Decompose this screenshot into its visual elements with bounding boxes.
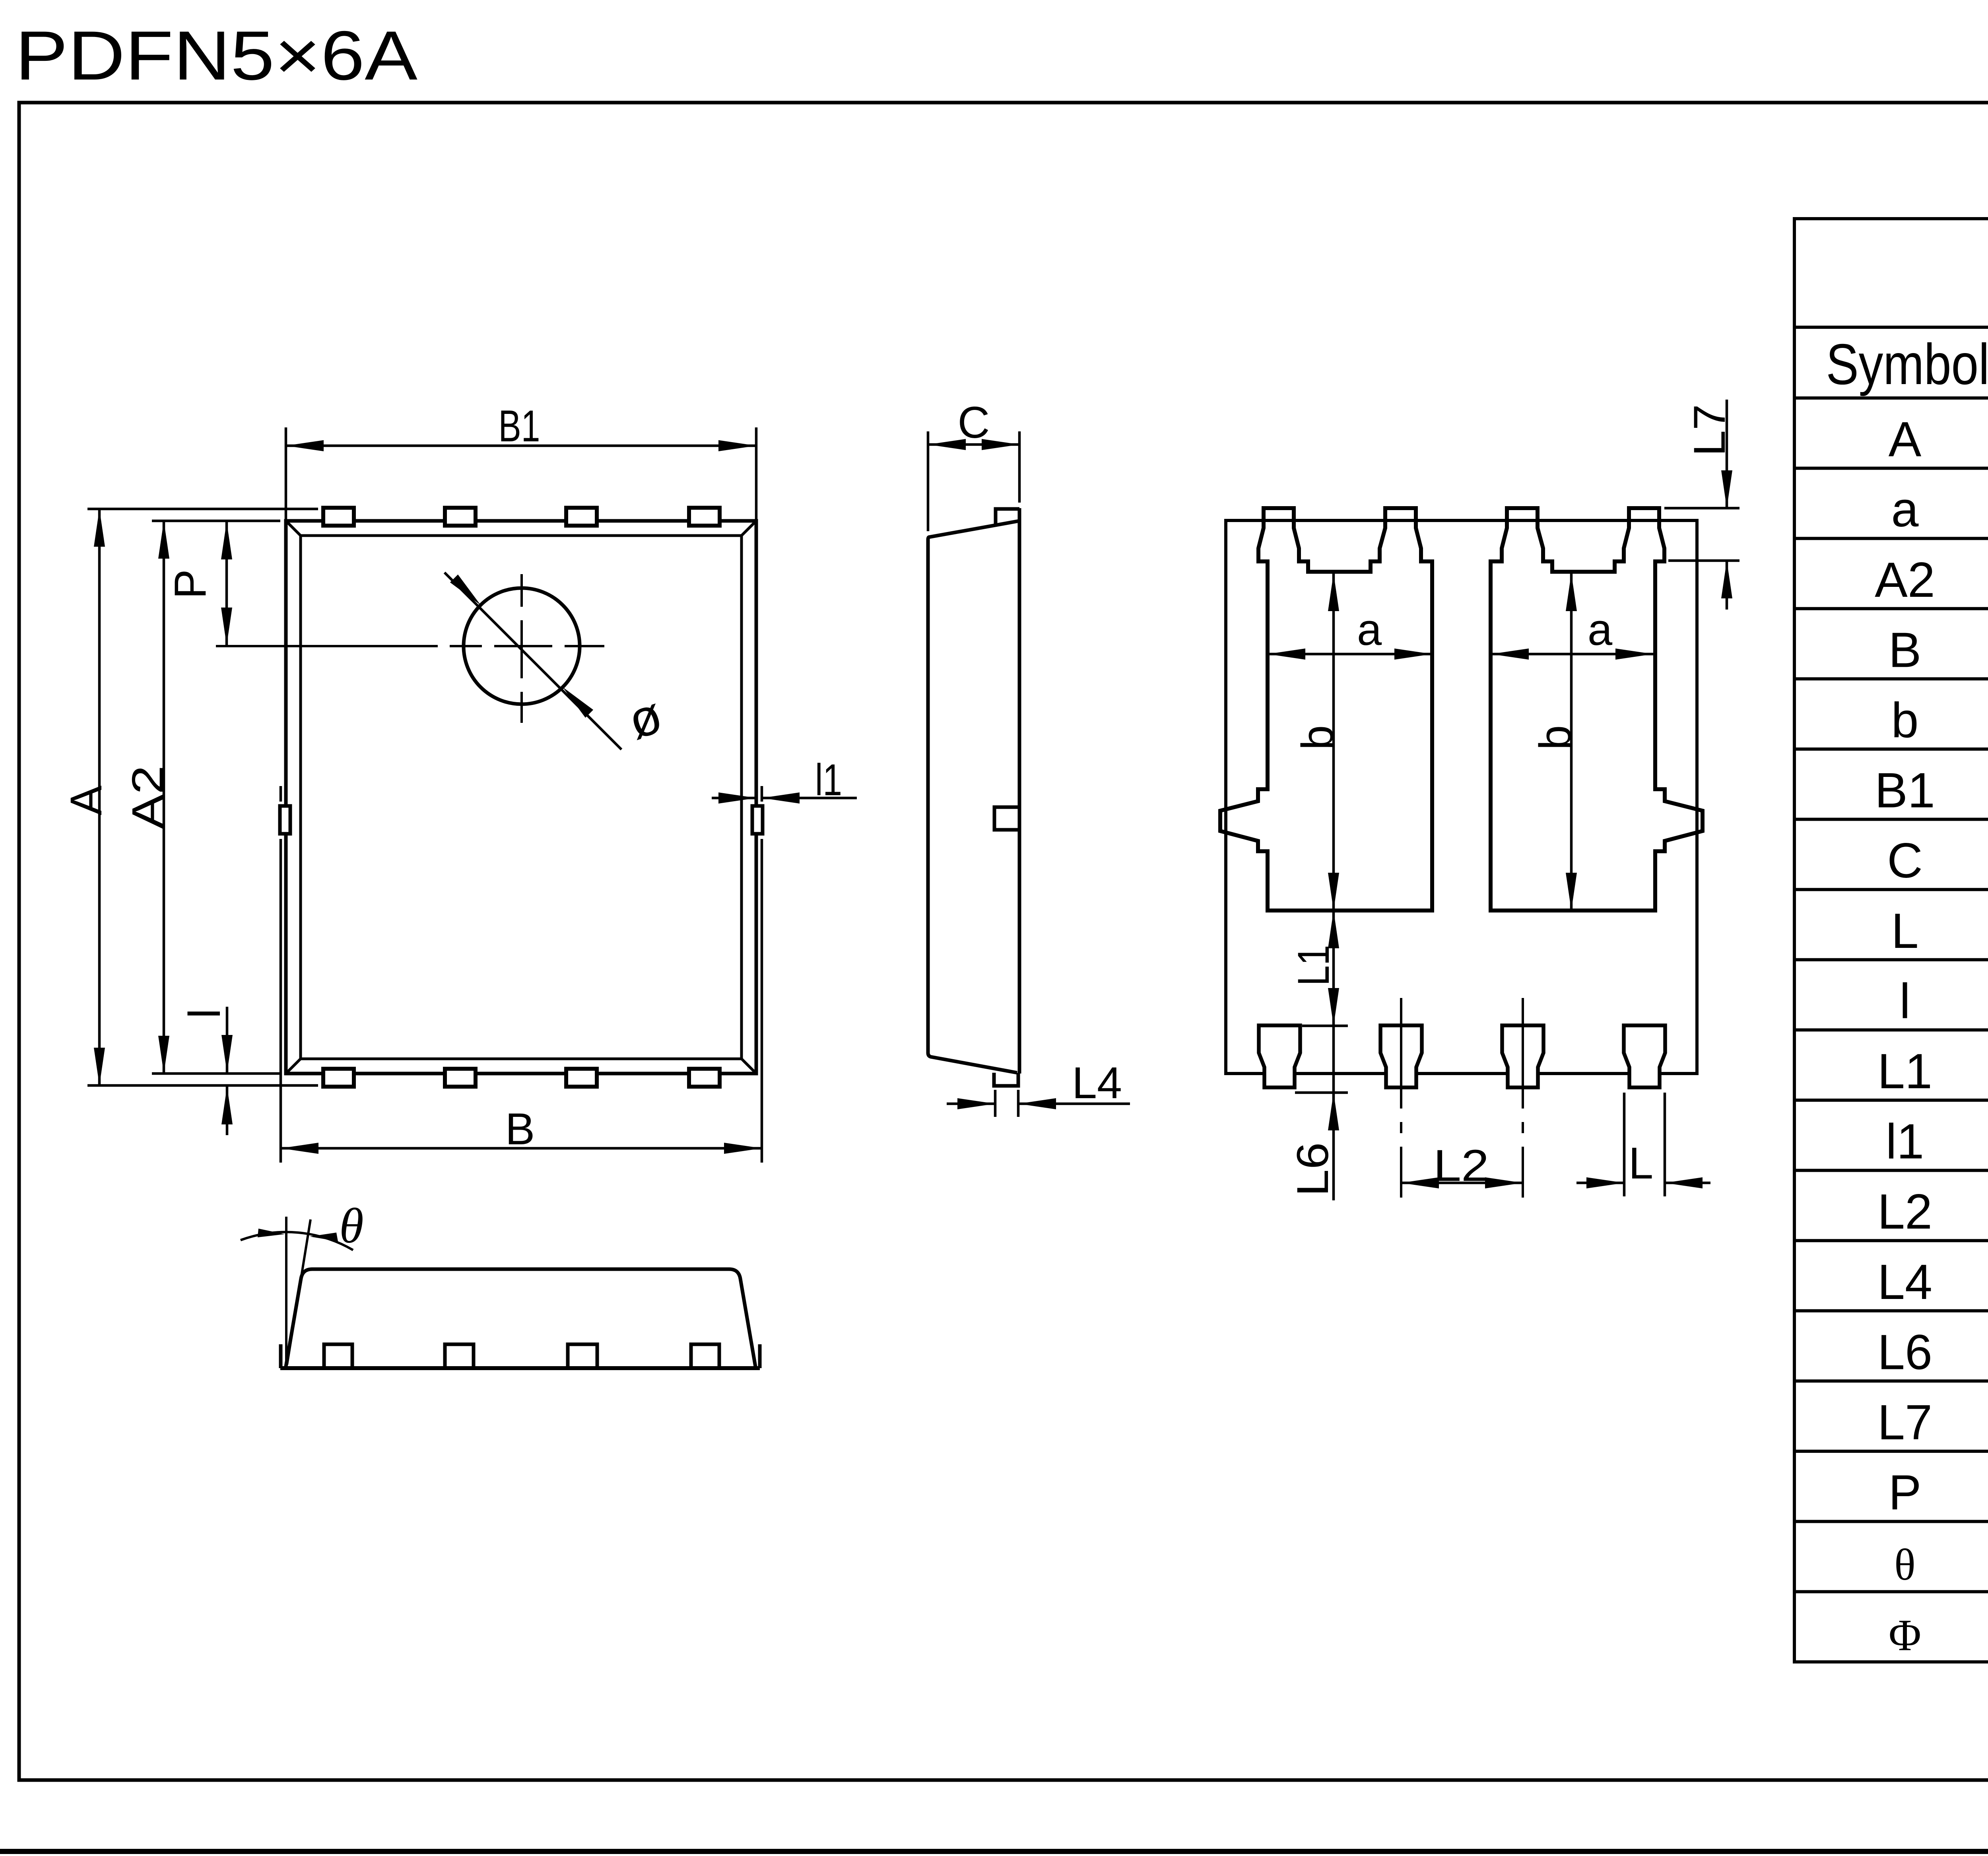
svg-text:b: b <box>1293 725 1342 750</box>
svg-text:l1: l1 <box>815 755 842 805</box>
svg-text:a: a <box>1357 605 1382 654</box>
svg-text:L4: L4 <box>1877 1255 1932 1310</box>
svg-text:L: L <box>1891 904 1919 959</box>
svg-text:L2: L2 <box>1877 1184 1932 1239</box>
svg-text:L6: L6 <box>1877 1325 1932 1380</box>
svg-text:PDFN5×6A: PDFN5×6A <box>15 17 417 95</box>
svg-text:P: P <box>1889 1466 1922 1520</box>
svg-text:A: A <box>61 785 111 815</box>
svg-text:A2: A2 <box>1875 553 1935 608</box>
svg-text:L1: L1 <box>1289 945 1338 986</box>
svg-text:b: b <box>1891 693 1919 748</box>
svg-text:L7: L7 <box>1685 404 1734 456</box>
svg-text:L6: L6 <box>1288 1142 1338 1196</box>
svg-text:l1: l1 <box>1886 1114 1924 1169</box>
svg-text:L4: L4 <box>1072 1058 1122 1108</box>
svg-text:B1: B1 <box>1875 763 1935 818</box>
svg-text:A2: A2 <box>123 765 173 829</box>
svg-text:b: b <box>1530 725 1580 750</box>
svg-text:C: C <box>958 398 990 447</box>
svg-text:L7: L7 <box>1877 1395 1932 1450</box>
svg-text:l: l <box>180 1009 229 1019</box>
svg-text:l: l <box>1899 974 1910 1029</box>
svg-text:a: a <box>1891 482 1919 537</box>
svg-text:Symbol: Symbol <box>1826 332 1988 396</box>
svg-text:Φ: Φ <box>1889 1611 1921 1660</box>
svg-text:L: L <box>1629 1138 1653 1188</box>
svg-text:a: a <box>1588 605 1613 654</box>
svg-text:L1: L1 <box>1877 1044 1932 1099</box>
svg-text:θ: θ <box>1894 1540 1916 1590</box>
svg-text:P: P <box>165 569 215 599</box>
svg-text:B: B <box>1889 623 1922 678</box>
svg-text:L2: L2 <box>1433 1141 1489 1190</box>
svg-text:θ: θ <box>339 1199 363 1254</box>
svg-text:B1: B1 <box>499 401 540 451</box>
svg-text:A: A <box>1889 412 1922 467</box>
svg-text:C: C <box>1887 833 1923 888</box>
svg-text:B: B <box>505 1104 535 1154</box>
